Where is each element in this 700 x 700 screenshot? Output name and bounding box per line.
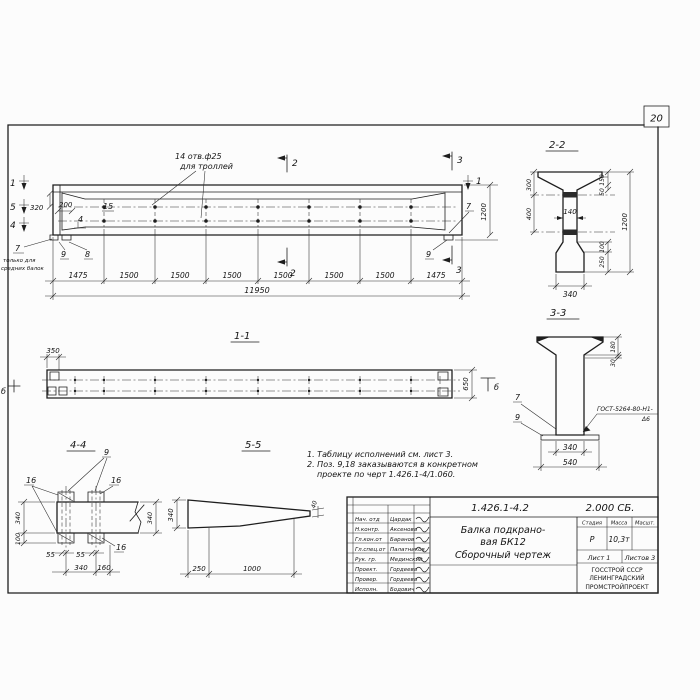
dim-seg-5: 1500 — [273, 271, 292, 280]
sheet-frame: 20 — [8, 106, 669, 593]
dim-55b: 55 — [76, 551, 85, 559]
dim-total: 11950 — [244, 286, 269, 295]
role-name: Палатников — [390, 547, 425, 553]
role-name: Цардак — [390, 517, 412, 523]
dim-seg-6: 1500 — [324, 271, 343, 280]
pos-16-bottom: 16 — [116, 543, 126, 552]
signatures — [416, 517, 429, 592]
doc-title-line3: Сборочный чертеж — [455, 550, 552, 561]
note-line-3: проекте по черт 1.426.1-4/1.060. — [317, 470, 455, 479]
dim-1000: 1000 — [243, 565, 261, 573]
role-label: Рук. гр. — [355, 557, 377, 563]
dim-1200-sec: 1200 — [621, 213, 629, 231]
main-dim-chain: 1475 1500 1500 1500 1500 1500 1500 1475 … — [45, 229, 470, 300]
dim-320: 320 — [30, 204, 44, 212]
plan-bolts — [74, 379, 412, 392]
pos-4: 4 — [78, 215, 83, 224]
mark-1-right: 1 — [476, 177, 482, 187]
dim-100: 100 — [14, 533, 22, 545]
title-block-roles: Нач. отд Цардак Н.контр. Аксенова Гл.кон… — [355, 517, 429, 593]
dim-30: 30 — [610, 359, 617, 367]
doc-title-line1: Балка подкрано- — [461, 525, 546, 536]
mark-4: 4 — [10, 221, 16, 231]
holes-note-line2: для троллей — [179, 162, 233, 171]
section-2-2: 2-2 300 400 150 50 100 250 1200 140 340 — [525, 140, 634, 299]
dim-180: 180 — [610, 341, 617, 353]
role-name: Бодович — [390, 587, 415, 593]
doc-suffix: 2.000 СБ. — [586, 503, 635, 514]
dim-40: 40 — [310, 500, 319, 509]
mark-b-left: б — [1, 387, 6, 396]
dim-340-sec22: 340 — [563, 290, 578, 299]
dim-1200: 1200 — [480, 203, 488, 221]
dim-seg-7: 1500 — [375, 271, 394, 280]
role-label: Гл.спец.от — [355, 547, 386, 553]
role-name: Мединский — [390, 557, 423, 563]
pos-9-right: 9 — [426, 250, 431, 259]
role-label: Нач. отд — [355, 517, 380, 523]
role-label: Н.контр. — [355, 527, 380, 533]
pos-9-sec44: 9 — [104, 448, 109, 457]
note-line-1: 1. Таблицу исполнений см. лист 3. — [307, 450, 453, 459]
dim-55a: 55 — [46, 551, 55, 559]
blueprint-canvas: 20 14 отв.ф25 для троллей — [0, 0, 700, 700]
section-1-1: 1-1 350 650 б б — [1, 331, 499, 401]
view-mark-b-right: б — [481, 378, 499, 392]
sheet-counter: Лист 1 — [587, 554, 611, 562]
dim-340-bottom: 340 — [74, 564, 88, 572]
mass-value: 10,3т — [608, 535, 630, 544]
drawing-notes: 1. Таблицу исполнений см. лист 3. 2. Поз… — [307, 450, 478, 479]
doc-title-line2: вая БК12 — [480, 537, 526, 548]
dim-seg-4: 1500 — [222, 271, 241, 280]
section-5-5: 5-5 340 40 250 1000 — [167, 440, 324, 578]
section-arrow-right: 1 — [463, 175, 482, 190]
stage-value: Р — [590, 535, 595, 544]
col-mass: Масса — [611, 521, 628, 527]
role-name: Аксенова — [389, 527, 418, 533]
role-label: Исполн. — [355, 587, 378, 593]
dim-650: 650 — [462, 377, 470, 391]
pos-9-left: 9 — [61, 250, 66, 259]
dim-250: 250 — [192, 565, 206, 573]
col-scale: Масшт. — [635, 521, 655, 527]
holes-note-line1: 14 отв.ф25 — [175, 152, 222, 161]
dim-50: 50 — [599, 188, 606, 196]
col-stage: Стадия — [582, 521, 602, 527]
role-label: Провер. — [355, 577, 378, 583]
dim-seg-3: 1500 — [170, 271, 189, 280]
doc-number: 1.426.1-4.2 — [471, 503, 529, 514]
mark-1-left: 1 — [10, 179, 16, 189]
dim-150: 150 — [599, 174, 606, 186]
trolley-holes — [102, 205, 413, 223]
dim-340-right: 340 — [146, 512, 154, 524]
sheet-number: 20 — [650, 114, 663, 125]
section-4-4: 4-4 340 100 340 55 55 340 160 9 16 16 16 — [14, 440, 162, 576]
org-line1: ГОССТРОЙ СССР — [591, 567, 643, 574]
weld-spec-line1: ГОСТ-5264-80-Н1- — [597, 406, 653, 413]
note-line-2: 2. Поз. 9,18 заказываются в конкретном — [307, 460, 478, 469]
pos-7-right: 7 — [466, 202, 472, 211]
section-cut-2: 2 2 — [277, 155, 298, 279]
pos-7-note-line2: средних балок — [1, 266, 45, 272]
pos-7-note-line1: только для — [3, 258, 36, 264]
role-label: Гл.кон.от — [355, 537, 383, 543]
pos-16-right: 16 — [111, 476, 121, 485]
section-arrows-left: 1 5 4 — [10, 175, 29, 232]
pos-16-left: 16 — [26, 476, 36, 485]
mark-b-right: б — [494, 383, 499, 392]
weld-spec-line2: Δ6 — [641, 416, 650, 423]
main-elevation-view: 14 отв.ф25 для троллей 1 5 4 2 2 3 3 — [1, 152, 498, 300]
dim-160: 160 — [97, 564, 111, 572]
section-4-4-title: 4-4 — [70, 440, 86, 451]
section-1-1-title: 1-1 — [234, 331, 250, 342]
dim-140: 140 — [563, 208, 577, 216]
role-name: Баранов — [390, 537, 414, 543]
title-block: Нач. отд Цардак Н.контр. Аксенова Гл.кон… — [347, 497, 658, 593]
role-name: Гордеева — [390, 577, 418, 583]
dim-250: 250 — [599, 256, 606, 268]
dim-340-left: 340 — [14, 512, 22, 524]
pos-7-sec33: 7 — [515, 393, 521, 402]
mark-5: 5 — [10, 203, 16, 213]
drawing-sheet: 20 14 отв.ф25 для троллей — [0, 0, 700, 700]
section-5-5-title: 5-5 — [245, 440, 261, 451]
view-mark-b-left: б — [1, 380, 20, 396]
dim-300: 300 — [525, 179, 533, 191]
role-name: Гордеева — [390, 567, 418, 573]
mark-3-top: 3 — [457, 156, 463, 166]
section-2-2-title: 2-2 — [549, 140, 565, 151]
mark-2-top: 2 — [292, 159, 298, 169]
dim-540: 540 — [563, 458, 578, 467]
dim-seg-2: 1500 — [119, 271, 138, 280]
section-3-3: 3-3 180 30 340 540 7 9 ГОСТ-5264-80-Н1- … — [513, 308, 658, 471]
dim-400: 400 — [525, 208, 533, 220]
pos-15: 15 — [103, 202, 113, 211]
dim-350: 350 — [46, 347, 60, 355]
pos-9-sec33: 9 — [515, 413, 520, 422]
pos-7: 7 — [15, 244, 21, 253]
role-label: Проект. — [355, 567, 378, 573]
section-3-3-title: 3-3 — [550, 308, 566, 319]
pos-8: 8 — [85, 250, 90, 259]
org-line2: ЛЕНИНГРАДСКИЙ — [589, 575, 644, 582]
org-line3: ПРОМСТРОЙПРОЕКТ — [585, 584, 649, 591]
sheets-total: Листов 3 — [624, 554, 655, 562]
dim-seg-8: 1475 — [426, 271, 445, 280]
dim-100: 100 — [599, 241, 606, 253]
dim-340-sec33: 340 — [563, 443, 578, 452]
mark-3-bottom: 3 — [456, 266, 462, 276]
dim-seg-1: 1475 — [68, 271, 87, 280]
dim-200: 200 — [59, 201, 73, 209]
dim-340-sec55: 340 — [167, 508, 175, 522]
